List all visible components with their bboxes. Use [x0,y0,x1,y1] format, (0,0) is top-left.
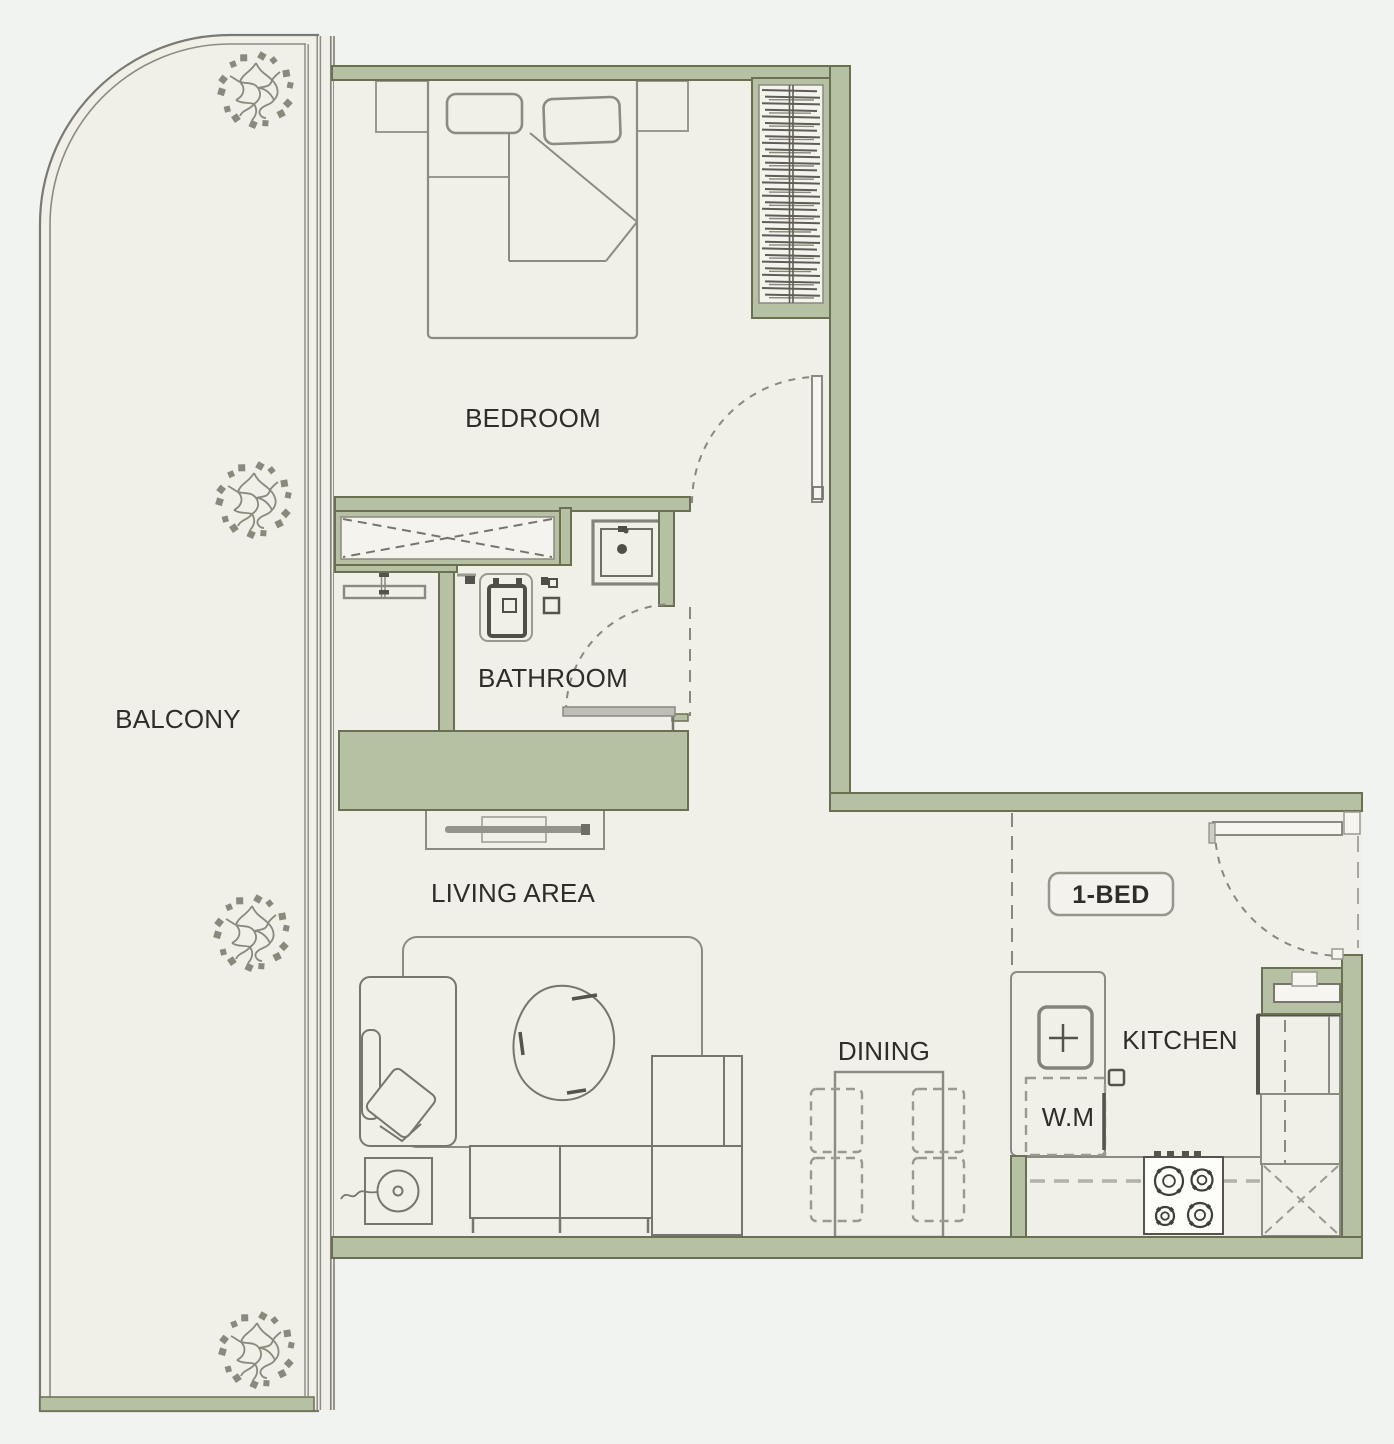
svg-text:KITCHEN: KITCHEN [1122,1025,1238,1055]
svg-text:BALCONY: BALCONY [115,704,241,734]
svg-text:BATHROOM: BATHROOM [478,663,628,693]
svg-text:DINING: DINING [838,1036,930,1066]
svg-text:LIVING AREA: LIVING AREA [431,878,595,908]
svg-text:BEDROOM: BEDROOM [465,403,601,433]
svg-text:1-BED: 1-BED [1072,881,1150,909]
svg-text:W.M: W.M [1042,1102,1095,1132]
